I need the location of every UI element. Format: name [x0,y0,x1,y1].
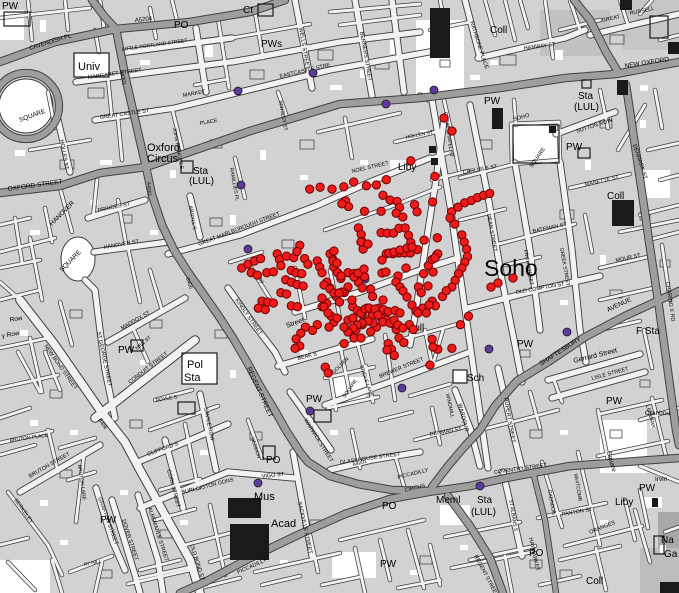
svg-text:PW: PW [2,1,19,12]
svg-text:Ga: Ga [664,549,678,560]
svg-text:Cranbou: Cranbou [645,410,670,417]
svg-text:PW: PW [306,394,323,405]
svg-text:(LUL): (LUL) [574,102,599,113]
svg-text:Circus: Circus [147,153,179,165]
svg-text:PWs: PWs [261,39,282,50]
svg-text:PO: PO [266,455,281,466]
svg-text:PO: PO [174,20,189,31]
svg-text:PW: PW [639,483,656,494]
svg-text:Ct: Ct [243,5,253,16]
svg-text:Sta: Sta [578,91,593,102]
svg-text:(LUL): (LUL) [471,507,496,518]
svg-text:Irvin: Irvin [655,476,668,483]
svg-text:Coll: Coll [607,191,624,202]
svg-text:Coll: Coll [490,25,507,36]
svg-text:PW: PW [484,96,501,107]
svg-text:Meml: Meml [436,495,460,506]
svg-text:PO: PO [382,501,397,512]
svg-text:Pol: Pol [187,359,203,371]
svg-text:Acad: Acad [271,518,296,530]
svg-text:Liby: Liby [615,497,633,508]
svg-text:Sta: Sta [477,495,492,506]
svg-text:PW: PW [606,396,623,407]
svg-text:Coll: Coll [586,576,603,587]
svg-text:Na: Na [661,535,674,546]
svg-text:Mus: Mus [254,491,275,503]
svg-text:PW: PW [566,142,583,153]
svg-text:Sch: Sch [467,373,484,384]
svg-text:A4201: A4201 [145,182,152,197]
svg-text:F Sta: F Sta [636,326,660,337]
svg-text:PW: PW [118,345,135,356]
svg-text:PW: PW [517,339,534,350]
svg-text:Sta: Sta [184,372,201,384]
svg-text:PW: PW [380,559,397,570]
svg-text:(LUL): (LUL) [189,176,214,187]
svg-text:Univ: Univ [78,61,101,73]
